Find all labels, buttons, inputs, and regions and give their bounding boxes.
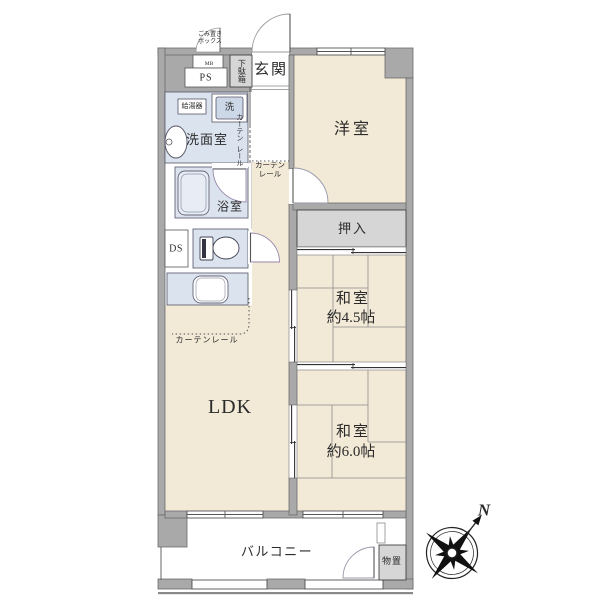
wall-right: [406, 78, 413, 589]
balcony-rail-c: [383, 579, 413, 589]
room-label-western: 洋室: [334, 121, 372, 139]
faucet-icon: [166, 139, 172, 145]
wall-bottom-c: [383, 511, 406, 518]
storage-jamb: [377, 523, 385, 543]
label-pipe-space: PS: [199, 73, 212, 84]
room-label-washitsu45-name: 和室: [336, 291, 370, 308]
label-water-heater: 給湯器: [182, 103, 203, 111]
wall-mid-a: [289, 204, 297, 290]
storage-door-arc: [343, 547, 374, 578]
kitchen-sink-icon: [193, 276, 228, 303]
label-curtain-rail-vertical: カーテンレール: [234, 114, 244, 167]
toilet-bowl-icon: [213, 237, 239, 259]
label-shoe-cabinet: 下駄箱: [237, 59, 246, 83]
wall-mid-c: [289, 478, 297, 515]
label-garbage-box: ごみ置き ボックス: [198, 32, 222, 46]
room-label-storage: 物置: [382, 557, 402, 567]
fusuma-ldk-60: [289, 405, 297, 478]
balcony-railing-a: [192, 580, 267, 589]
fusuma-between-tatami: [297, 362, 406, 370]
bathtub-icon: [178, 171, 209, 215]
entry-door-arc: [252, 14, 290, 52]
toilet-tank-bar: [202, 239, 206, 258]
room-label-bathroom: 浴室: [217, 200, 243, 213]
wall-top-right-notch: [385, 48, 413, 78]
label-meter-box: MB: [205, 60, 214, 66]
wall-bottom-a: [165, 511, 187, 518]
label-duct-space: DS: [169, 244, 183, 255]
wall-left: [158, 48, 165, 515]
room-label-ldk: LDK: [208, 396, 252, 418]
room-label-balcony: バルコニー: [241, 545, 313, 559]
label-curtain-rail-hall: カーテン レール: [255, 161, 285, 178]
wall-corner-block: [158, 515, 187, 547]
balcony-base-line: [158, 592, 413, 594]
balcony-rail-a: [158, 579, 192, 589]
compass-icon: [406, 495, 508, 599]
label-washer: 洗: [225, 103, 235, 113]
wall-top-mid: [289, 48, 317, 55]
floorplan-drawing: [0, 0, 600, 600]
room-label-closet: 押入: [338, 222, 368, 236]
toilet-tank-icon: [200, 237, 213, 260]
wall-mid-b: [289, 362, 297, 405]
fusuma-ldk-45: [289, 290, 297, 362]
balcony-railing-b: [305, 580, 383, 589]
room-label-washitsu60-size: 約6.0帖: [327, 444, 376, 461]
room-label-washroom: 洗面室: [186, 133, 228, 147]
room-label-genkan: 玄関: [254, 62, 288, 79]
floorplan-canvas: 玄関 洋室 押入 和室 約4.5帖 和室 約6.0帖 LDK 洗面室 浴室 バル…: [0, 0, 600, 600]
room-label-washitsu45-size: 約4.5帖: [327, 310, 376, 327]
compass-north-label: N: [478, 502, 490, 521]
wall-closet-top: [293, 203, 406, 210]
wall-mid-upper: [289, 55, 294, 169]
balcony-rail-b: [267, 579, 305, 589]
fusuma-closet: [297, 247, 406, 255]
label-curtain-rail-kitchen: カーテンレール: [176, 337, 239, 346]
room-label-washitsu60-name: 和室: [336, 424, 370, 441]
